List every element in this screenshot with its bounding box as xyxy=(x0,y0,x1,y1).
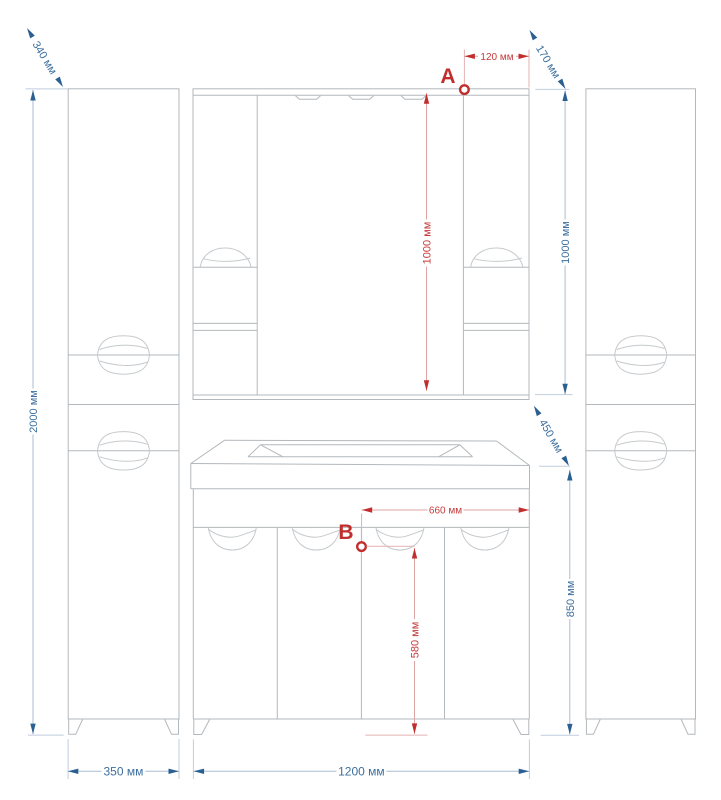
svg-text:1000 мм: 1000 мм xyxy=(560,221,572,264)
svg-text:850 мм: 850 мм xyxy=(565,581,577,618)
svg-text:1200 мм: 1200 мм xyxy=(338,765,385,779)
svg-text:1000 мм: 1000 мм xyxy=(422,222,434,265)
svg-text:2000 мм: 2000 мм xyxy=(28,390,40,433)
svg-text:B: B xyxy=(338,521,353,544)
svg-text:350 мм: 350 мм xyxy=(103,765,143,779)
svg-text:660 мм: 660 мм xyxy=(429,506,462,517)
svg-text:A: A xyxy=(440,65,455,88)
svg-text:580 мм: 580 мм xyxy=(410,622,422,659)
svg-text:120 мм: 120 мм xyxy=(480,52,513,63)
